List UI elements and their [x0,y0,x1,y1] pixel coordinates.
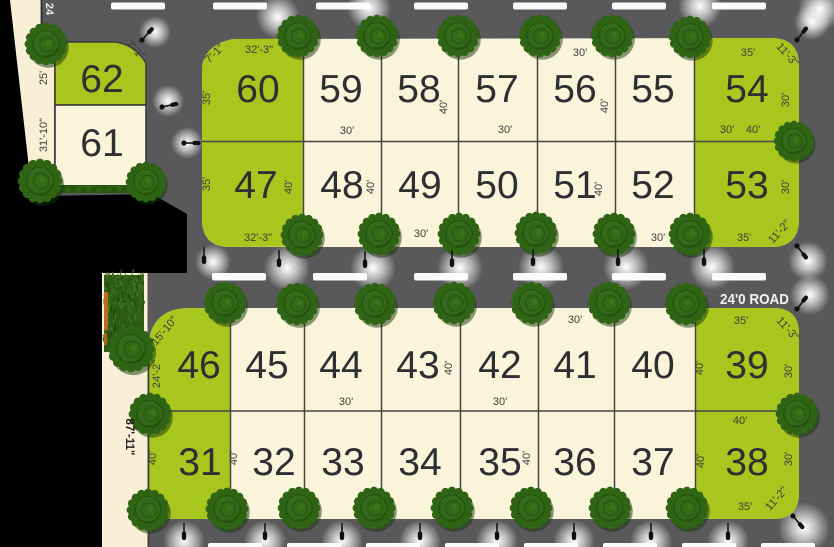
svg-text:37: 37 [631,441,674,484]
svg-text:35': 35' [741,47,755,59]
svg-text:40': 40' [283,180,295,194]
svg-text:30': 30' [720,124,734,136]
svg-text:30': 30' [340,125,354,137]
svg-text:40: 40 [631,344,674,387]
svg-text:40': 40' [746,124,760,136]
svg-text:50: 50 [475,164,518,207]
svg-text:58: 58 [397,68,440,111]
svg-text:51: 51 [553,164,596,207]
svg-text:40': 40' [147,451,159,465]
svg-text:30': 30' [783,364,795,378]
svg-text:53: 53 [725,164,768,207]
svg-text:35': 35' [737,232,751,244]
svg-text:32: 32 [252,441,295,484]
svg-text:35: 35 [478,441,521,484]
svg-text:40': 40' [599,99,611,113]
svg-text:40': 40' [521,451,533,465]
svg-text:41: 41 [553,344,596,387]
svg-text:42: 42 [478,344,521,387]
svg-text:30': 30' [498,124,512,136]
svg-text:35': 35' [201,91,213,105]
svg-text:36: 36 [553,441,596,484]
svg-text:48: 48 [320,164,363,207]
svg-text:31'-10": 31'-10" [38,118,50,152]
svg-text:44: 44 [319,344,362,387]
svg-text:30': 30' [414,228,428,240]
svg-text:30': 30' [573,47,587,59]
svg-text:57: 57 [475,68,518,111]
svg-text:52: 52 [631,164,674,207]
svg-text:49: 49 [398,164,441,207]
svg-text:35': 35' [734,315,748,327]
svg-text:30': 30' [780,93,792,107]
svg-text:35': 35' [738,501,752,513]
svg-text:35': 35' [201,177,213,191]
svg-text:59: 59 [319,68,362,111]
svg-text:33: 33 [321,441,364,484]
svg-text:40': 40' [695,454,707,468]
svg-text:40': 40' [694,361,706,375]
svg-text:30': 30' [651,232,665,244]
svg-text:40': 40' [365,180,377,194]
svg-text:24: 24 [43,3,55,16]
svg-text:32'-3": 32'-3" [244,232,272,244]
svg-text:38: 38 [725,441,768,484]
svg-text:30': 30' [783,452,795,466]
svg-text:31: 31 [178,441,221,484]
svg-text:30': 30' [339,396,353,408]
svg-text:24'0 ROAD: 24'0 ROAD [720,291,789,308]
svg-text:60: 60 [236,68,279,111]
svg-text:55: 55 [631,68,674,111]
svg-text:30': 30' [568,314,582,326]
svg-text:30': 30' [493,396,507,408]
svg-text:87'-11": 87'-11" [123,419,135,456]
svg-text:47: 47 [234,164,277,207]
svg-text:43: 43 [396,344,439,387]
svg-text:39: 39 [725,344,768,387]
svg-text:45: 45 [245,344,288,387]
svg-text:40': 40' [438,100,450,114]
svg-text:61: 61 [80,122,123,165]
svg-text:40': 40' [443,361,455,375]
svg-text:40': 40' [593,182,605,196]
svg-text:32'-3": 32'-3" [245,44,273,56]
svg-text:24'-2": 24'-2" [151,360,163,388]
svg-text:54: 54 [725,68,768,111]
svg-text:62: 62 [80,58,123,101]
svg-text:56: 56 [553,68,596,111]
svg-text:40': 40' [733,415,747,427]
svg-text:46: 46 [177,344,220,387]
svg-text:30': 30' [780,180,792,194]
svg-text:34: 34 [398,441,441,484]
svg-text:25': 25' [38,71,50,85]
svg-text:40': 40' [228,451,240,465]
